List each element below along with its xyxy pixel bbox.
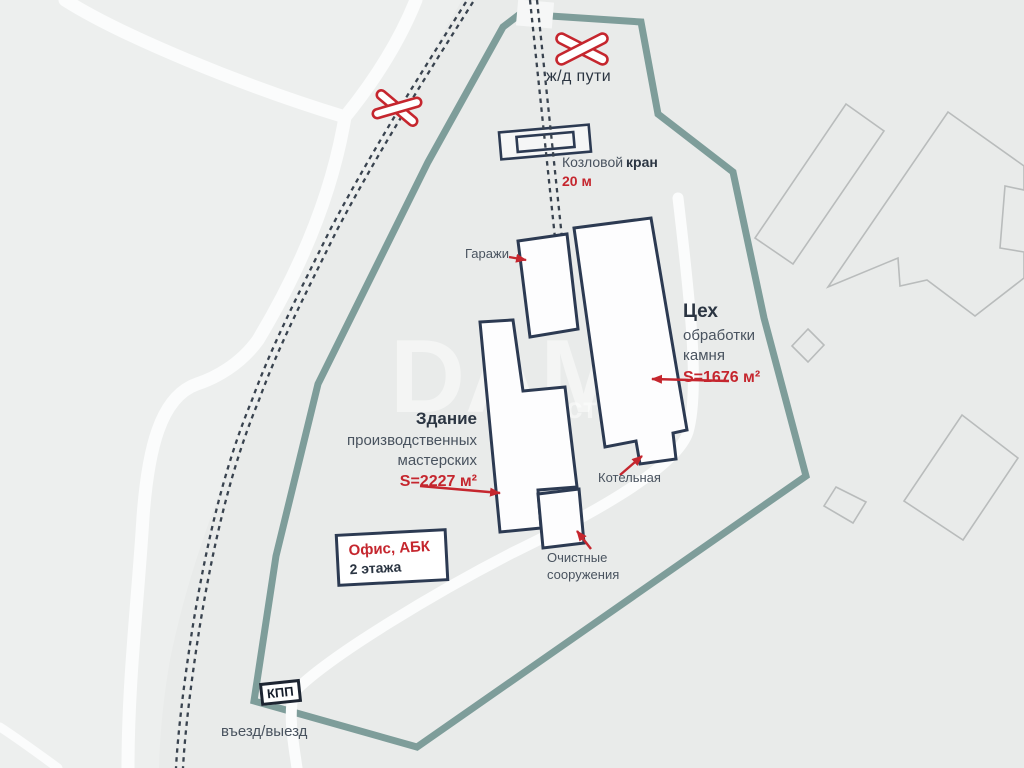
treatment-line1: Очистные xyxy=(547,549,619,566)
treatment-line2: сооружения xyxy=(547,566,619,583)
neighbor-small-diamond xyxy=(792,329,824,362)
gantry-crane-label-bold: кран xyxy=(626,154,658,170)
railway-boundary-gap xyxy=(516,0,554,29)
production-workshops-label: Здание производственных мастерских S=222… xyxy=(305,409,477,491)
building-treatment-facilities xyxy=(538,489,584,548)
railway-tracks-label: ж/д пути xyxy=(546,68,611,86)
neighbor-small-rect xyxy=(824,487,866,523)
gantry-crane-label-regular: Козловой xyxy=(562,154,623,170)
railway-crossing-icon xyxy=(555,32,609,66)
boiler-label: Котельная xyxy=(598,470,661,485)
treatment-facilities-label: Очистные сооружения xyxy=(547,549,619,583)
entrance-exit-label: въезд/выезд xyxy=(221,723,307,740)
office-title: Офис, АБК xyxy=(348,537,445,559)
checkpoint-badge: КПП xyxy=(259,679,302,706)
production-workshops-title: Здание xyxy=(305,409,477,429)
garages-label: Гаражи xyxy=(465,246,509,261)
stone-workshop-title: Цех xyxy=(683,301,760,323)
building-garages xyxy=(518,234,578,337)
office-callout-box: Офис, АБК 2 этажа xyxy=(335,528,450,587)
gantry-crane-length: 20 м xyxy=(562,173,592,189)
neighbor-buildings xyxy=(755,104,1024,540)
office-floors: 2 этажа xyxy=(349,556,446,577)
stone-workshop-label: Цех обработки камня S=1676 м² xyxy=(683,301,760,387)
stone-workshop-area: S=1676 м² xyxy=(683,369,760,387)
production-workshops-line3: мастерских xyxy=(305,451,477,471)
neighbor-long-building xyxy=(755,104,884,264)
gantry-crane-label: Козловойкран xyxy=(562,154,658,170)
neighbor-large-building xyxy=(828,112,1024,316)
production-workshops-area: S=2227 м² xyxy=(305,473,477,491)
production-workshops-line2: производственных xyxy=(305,431,477,451)
industrial-site-plan: DАМ ость ж/д пути Козловойкран 20 xyxy=(0,0,1024,768)
neighbor-rotated-rect xyxy=(904,415,1018,540)
site-plan-canvas: DАМ ость xyxy=(0,0,1024,768)
stone-workshop-line2: обработки xyxy=(683,326,760,346)
stone-workshop-line3: камня xyxy=(683,346,760,366)
